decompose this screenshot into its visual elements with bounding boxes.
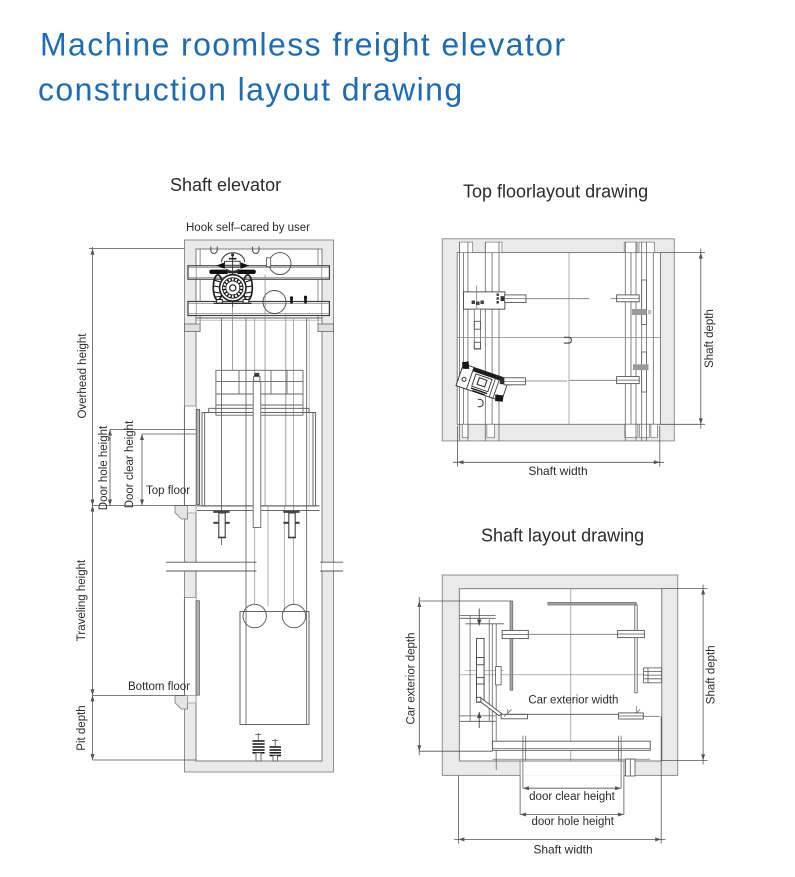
svg-text:construction layout drawing: construction layout drawing — [38, 72, 464, 108]
svg-text:Shaft depth: Shaft depth — [706, 645, 718, 704]
svg-text:Machine roomless freight eleva: Machine roomless freight elevator — [40, 27, 566, 63]
svg-text:door hole height: door hole height — [531, 816, 614, 828]
svg-text:Shaft width: Shaft width — [528, 464, 587, 478]
svg-text:Top floor: Top floor — [146, 485, 190, 497]
svg-text:Shaft depth: Shaft depth — [704, 309, 716, 368]
svg-text:Overhead height: Overhead height — [77, 333, 89, 419]
svg-text:Bottom floor: Bottom floor — [128, 681, 190, 693]
svg-text:Door hole height: Door hole height — [98, 425, 110, 510]
svg-text:Pit depth: Pit depth — [76, 705, 88, 750]
svg-text:Top floorlayout drawing: Top floorlayout drawing — [463, 182, 648, 202]
svg-text:Hook self–cared by user: Hook self–cared by user — [186, 222, 310, 234]
svg-text:Shaft elevator: Shaft elevator — [170, 175, 281, 195]
svg-text:Shaft layout drawing: Shaft layout drawing — [481, 526, 644, 546]
svg-text:Traveling height: Traveling height — [76, 559, 88, 641]
svg-text:Door clear height: Door clear height — [124, 420, 136, 508]
svg-text:door clear height: door clear height — [529, 791, 615, 803]
svg-text:Car exterior depth: Car exterior depth — [406, 632, 418, 724]
svg-text:Shaft width: Shaft width — [533, 843, 592, 857]
svg-text:Car exterior width: Car exterior width — [528, 695, 618, 707]
